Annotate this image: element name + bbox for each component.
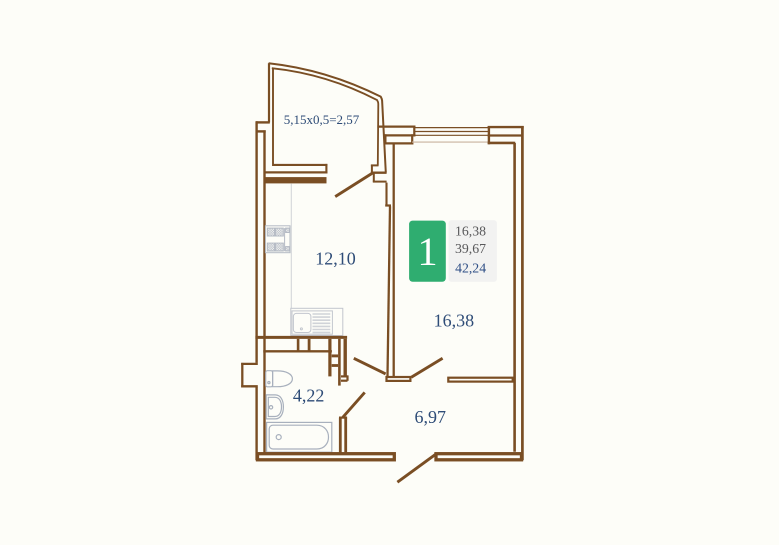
svg-text:42,24: 42,24 [455,261,486,276]
svg-text:4,22: 4,22 [293,385,325,405]
svg-text:1: 1 [417,229,437,274]
svg-text:39,67: 39,67 [455,241,486,256]
svg-text:16,38: 16,38 [434,310,475,330]
svg-text:6,97: 6,97 [415,407,447,427]
svg-text:12,10: 12,10 [315,248,356,268]
svg-text:16,38: 16,38 [455,223,486,238]
svg-text:5,15x0,5=2,57: 5,15x0,5=2,57 [284,112,360,127]
